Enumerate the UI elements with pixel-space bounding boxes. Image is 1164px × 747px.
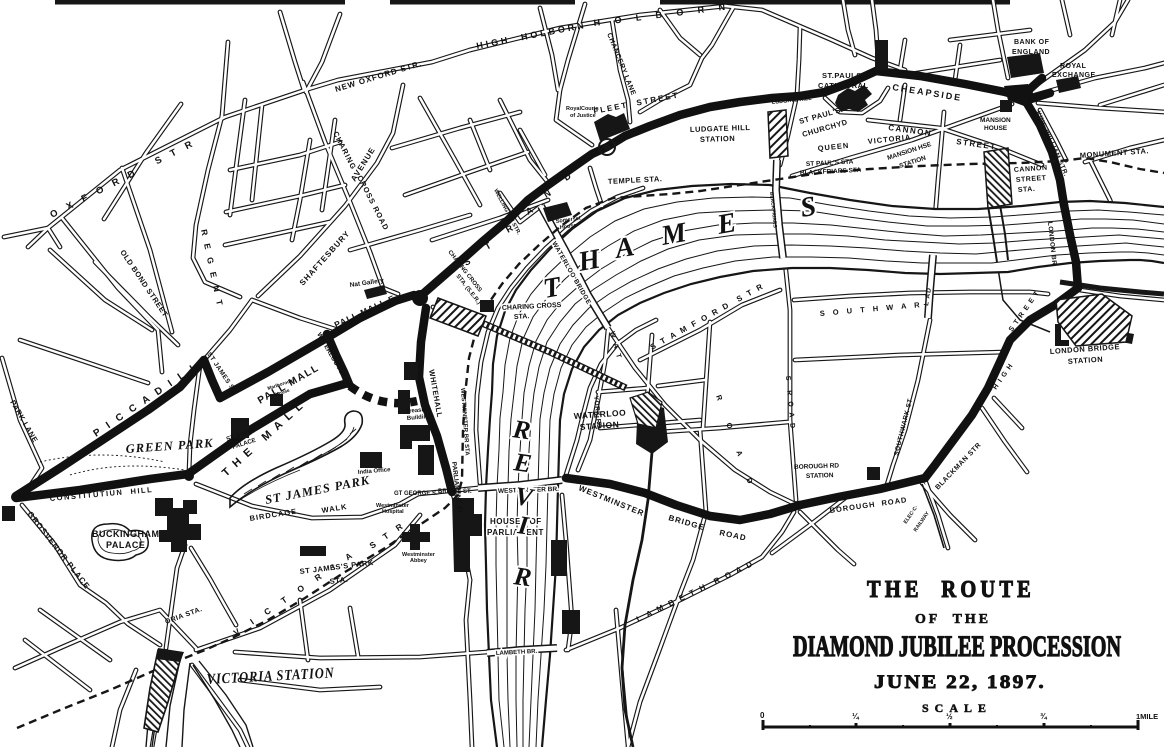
- svg-text:Hospital: Hospital: [382, 509, 404, 515]
- svg-text:THE ROUTE: THE ROUTE: [867, 577, 1035, 603]
- svg-text:RoyalCourts: RoyalCourts: [566, 106, 599, 112]
- svg-text:STATION: STATION: [806, 472, 834, 480]
- svg-text:PARLIAMENT: PARLIAMENT: [487, 528, 544, 537]
- svg-text:JUNE 22, 1897.: JUNE 22, 1897.: [874, 672, 1046, 693]
- svg-text:HOUSE: HOUSE: [984, 125, 1008, 132]
- svg-text:STA.: STA.: [514, 313, 530, 321]
- svg-text:CATHEDRAL: CATHEDRAL: [818, 81, 869, 90]
- svg-text:BUCKINGHAM: BUCKINGHAM: [92, 529, 160, 539]
- svg-text:½: ½: [946, 712, 953, 721]
- svg-text:of Justice: of Justice: [570, 113, 596, 119]
- svg-text:STATION: STATION: [700, 134, 736, 144]
- svg-text:OF THE: OF THE: [915, 612, 991, 627]
- svg-text:0: 0: [760, 711, 765, 720]
- svg-text:Abbey: Abbey: [410, 558, 428, 564]
- svg-text:HOUSES OF: HOUSES OF: [490, 517, 542, 526]
- svg-text:BRIDGE ST.: BRIDGE ST.: [438, 489, 472, 495]
- svg-text:DIAMOND JUBILEE PROCESSION: DIAMOND JUBILEE PROCESSION: [793, 630, 1121, 663]
- svg-text:ST.PAULS: ST.PAULS: [822, 71, 862, 80]
- svg-text:SCALE: SCALE: [922, 701, 992, 715]
- svg-text:1MILE: 1MILE: [1136, 712, 1158, 721]
- svg-text:BANK OF: BANK OF: [1014, 39, 1050, 46]
- svg-text:EXCHANGE: EXCHANGE: [1052, 72, 1096, 79]
- svg-text:PALACE: PALACE: [106, 540, 145, 550]
- svg-text:STA.: STA.: [1018, 186, 1036, 194]
- svg-text:MANSION: MANSION: [980, 117, 1011, 124]
- svg-text:GT GEORGE S.: GT GEORGE S.: [394, 491, 438, 497]
- svg-text:ROYAL: ROYAL: [1060, 63, 1087, 70]
- svg-text:ENGLAND: ENGLAND: [1012, 49, 1050, 56]
